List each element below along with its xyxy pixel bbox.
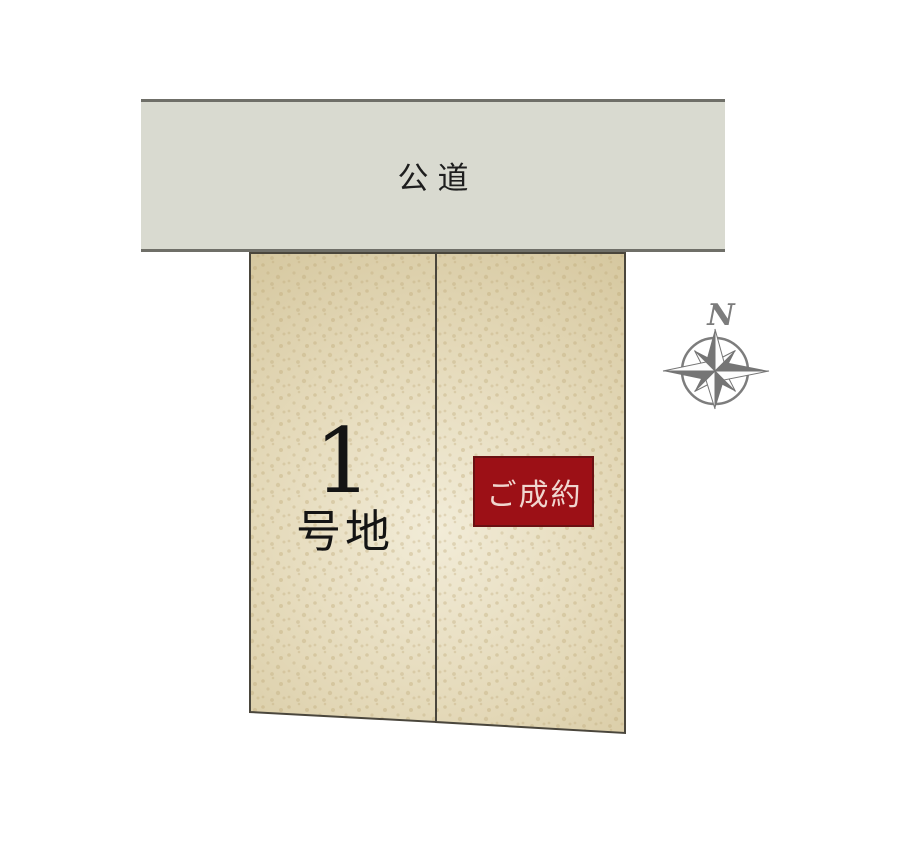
compass-rose-icon — [659, 315, 773, 429]
site-plan: 公道 — [0, 0, 900, 852]
sold-badge: ご成約 — [473, 456, 594, 527]
lot-1-number: 1 — [250, 419, 436, 505]
lot-1-suffix: 号地 — [250, 509, 436, 554]
lot-1-label: 1 号地 — [250, 419, 436, 554]
sold-badge-label: ご成約 — [485, 470, 583, 514]
